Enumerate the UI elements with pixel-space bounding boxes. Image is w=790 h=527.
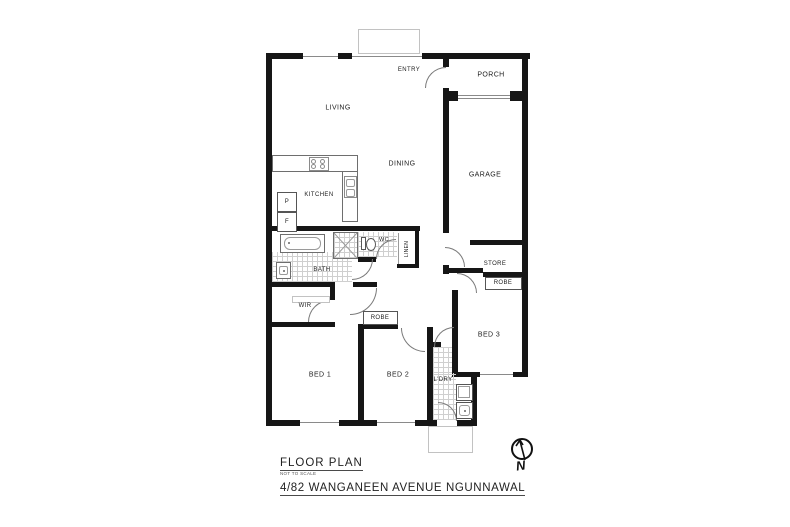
- wall-wir-right: [330, 287, 335, 300]
- vanity-tap: [283, 270, 285, 272]
- laundry-hall-door-arc: [434, 327, 454, 347]
- kitchen-sink-bowl-2: [346, 189, 355, 197]
- linen-shelf-line: [398, 233, 399, 264]
- cooktop-burner-4: [320, 164, 325, 169]
- toilet-bowl: [366, 238, 376, 251]
- room-label-porch: PORCH: [477, 72, 504, 79]
- room-label-bath: BATH: [313, 267, 330, 273]
- wall-wir-bottom: [266, 322, 335, 327]
- wall-top-c: [422, 53, 530, 59]
- laundry-step-outline: [428, 426, 473, 453]
- pantry-label: P: [285, 199, 289, 205]
- room-label-robe-bed2: ROBE: [371, 315, 390, 321]
- bed2-door-arc: [401, 328, 425, 352]
- wall-linen-right: [415, 229, 419, 268]
- wall-garage-store: [470, 240, 528, 245]
- page-title-text: FLOOR PLAN: [280, 457, 363, 471]
- laundry-tub-tap: [464, 410, 466, 412]
- garage-door-line-1: [458, 95, 510, 96]
- room-label-bed3: BED 3: [478, 332, 500, 339]
- bed3-door-arc: [457, 273, 477, 293]
- room-label-living: LIVING: [325, 105, 350, 112]
- room-label-kitchen: KITCHEN: [304, 192, 333, 198]
- washing-machine-inner: [458, 386, 470, 398]
- entry-step-outline: [358, 29, 420, 54]
- room-label-robe-bed3: ROBE: [494, 280, 513, 286]
- window-entry-top: [352, 56, 422, 57]
- room-label-bed1: BED 1: [309, 372, 331, 379]
- wall-store-bottom: [443, 268, 483, 273]
- wall-entry-stub: [443, 59, 449, 67]
- north-label: N: [515, 457, 526, 473]
- porch-stub-right: [510, 91, 528, 101]
- entry-door-arc: [425, 67, 446, 88]
- room-label-entry: ENTRY: [398, 67, 420, 73]
- wall-left: [266, 53, 272, 426]
- wall-bath-stub: [353, 282, 377, 287]
- cooktop-burner-3: [311, 164, 316, 169]
- room-label-dining: DINING: [389, 161, 416, 168]
- address-text: 4/82 WANGANEEN AVENUE NGUNNAWAL: [280, 482, 525, 496]
- wall-garage-left: [443, 88, 449, 233]
- wall-top-b: [338, 53, 352, 59]
- room-label-garage: GARAGE: [469, 172, 501, 179]
- window-bed1: [300, 422, 339, 423]
- wall-right: [522, 53, 528, 377]
- room-label-linen: LINEN: [404, 241, 410, 257]
- bathtub-tap: [288, 242, 290, 244]
- wall-bottom-b: [339, 420, 377, 426]
- bath-door-arc: [352, 259, 373, 280]
- floor-plan-canvas: LIVING DINING KITCHEN ENTRY PORCH GARAGE…: [0, 0, 790, 527]
- wall-top-a: [266, 53, 303, 59]
- wall-bath-bottom: [266, 282, 335, 287]
- shower: [333, 232, 358, 259]
- fridge-label: F: [285, 219, 289, 225]
- wall-bottom-a: [266, 420, 300, 426]
- store-door-arc: [445, 247, 465, 267]
- room-label-bed2: BED 2: [387, 372, 409, 379]
- address-title: 4/82 WANGANEEN AVENUE NGUNNAWAL: [280, 482, 525, 496]
- room-label-wc: WC: [379, 237, 389, 243]
- page-title: FLOOR PLAN: [280, 457, 363, 471]
- laundry-tiled-floor-upper: [433, 347, 452, 373]
- garage-door-line-2: [458, 98, 510, 99]
- wall-bottom-c: [415, 420, 437, 426]
- room-label-store: STORE: [484, 261, 507, 267]
- shower-cross-icon: [334, 233, 357, 258]
- room-label-wir: WIR: [299, 303, 312, 309]
- window-bed2: [377, 422, 415, 423]
- scale-note: NOT TO SCALE: [280, 471, 316, 476]
- wall-bed3-bottom-b: [513, 372, 528, 377]
- window-bed3: [480, 374, 513, 375]
- window-living-top: [303, 56, 338, 57]
- wall-linen-bottom: [397, 264, 419, 268]
- wir-shelf-outline: [292, 296, 330, 303]
- wall-bed1-bed2: [358, 327, 364, 420]
- porch-stub-left: [444, 91, 458, 101]
- kitchen-sink-bowl-1: [346, 179, 355, 187]
- room-label-laundry: L'DRY: [433, 377, 452, 383]
